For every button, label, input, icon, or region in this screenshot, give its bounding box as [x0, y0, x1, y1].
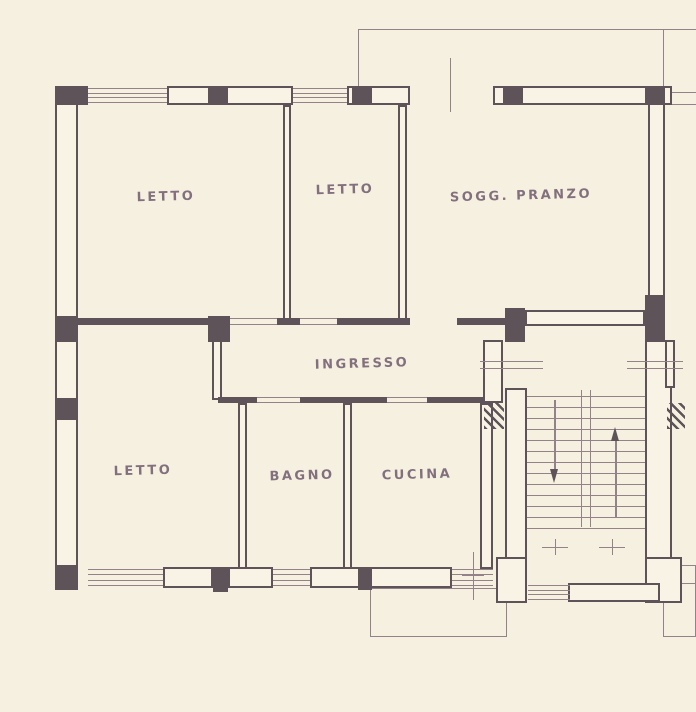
window-letto1-line [88, 97, 167, 98]
wall-north-a [167, 86, 293, 105]
entry-steps-line [528, 590, 570, 591]
door-landing-left-line [480, 361, 543, 362]
pier-south-1 [213, 567, 228, 592]
wall-letto2-soggiorno [398, 105, 407, 320]
arrowhead-up-icon [611, 427, 619, 441]
window-bagno-line [273, 580, 310, 581]
wall-soggiorno-south [525, 310, 645, 326]
wall-south-b [228, 567, 273, 588]
door-letto1-line [230, 318, 277, 319]
wall-mid-b [277, 318, 300, 325]
wall-south-c [310, 567, 452, 588]
wall-hatch-left [484, 403, 504, 429]
entry-steps-line [528, 599, 570, 600]
column-west-low [55, 398, 78, 420]
window-letto2 [293, 88, 347, 103]
wall-ingresso-west [212, 340, 222, 400]
window-bagno-line [273, 574, 310, 575]
wall-entry [483, 340, 503, 403]
door-cucina [387, 397, 427, 403]
door-bagno-line [257, 402, 300, 403]
pier-north-3 [503, 88, 523, 103]
column-sw-corner [55, 565, 78, 590]
wall-mid-c [337, 318, 410, 325]
column-landing-right [645, 295, 665, 342]
balcony-top-right-edge [663, 29, 664, 87]
window-letto3-line [88, 574, 163, 575]
pier-north-1 [208, 88, 228, 103]
wall-mid-d [457, 318, 505, 325]
door-cucina-line [387, 402, 427, 403]
column-mid [208, 316, 230, 342]
stair-stringer-line [581, 390, 582, 527]
door-letto2-line [300, 318, 337, 319]
window-letto1-line [88, 93, 167, 94]
entry-steps-line [528, 585, 570, 586]
wall-ingresso-south-a [218, 397, 257, 403]
door-letto2 [300, 318, 337, 325]
centerline-balcony-door [450, 58, 451, 112]
stair-stringer-line [590, 390, 591, 527]
balcony-top-left-edge [358, 29, 359, 87]
balcony-top-edge [358, 29, 696, 30]
room-label-letto-3: LETTO [113, 463, 172, 480]
window-letto3-line [88, 580, 163, 581]
window-letto3-line [88, 585, 163, 586]
room-label-cucina: CUCINA [382, 467, 453, 484]
door-bagno [257, 397, 300, 403]
stair-arrow-up [611, 427, 620, 518]
room-label-ingresso: INGRESSO [315, 355, 410, 372]
door-bagno-line [257, 397, 300, 398]
window-letto3-line [88, 569, 163, 570]
stair-treads-line [527, 528, 645, 529]
wall-ingresso-south-b [300, 397, 387, 403]
pier-north-2 [352, 88, 372, 103]
room-label-soggiorno-pranzo: SOGG. PRANZO [450, 187, 593, 206]
door-landing-left [480, 361, 543, 369]
centerline-mark-1 [542, 539, 568, 555]
window-letto1-line [88, 102, 167, 103]
entry-steps-line [528, 594, 570, 595]
wall-south-a [163, 567, 213, 588]
door-landing-right-line [627, 368, 683, 369]
floor-plan-canvas: LETTOLETTOSOGG. PRANZOINGRESSOLETTOBAGNO… [0, 0, 696, 712]
window-letto2-line [293, 102, 347, 103]
balcony-bottom [370, 588, 507, 637]
arrow-shaft [554, 400, 556, 471]
wall-hatch-right [667, 403, 685, 429]
door-landing-right-line [627, 361, 683, 362]
door-letto1 [230, 318, 277, 325]
centerline-cucina [473, 552, 474, 600]
arrow-shaft [615, 439, 617, 518]
column-west-mid [55, 316, 78, 342]
stair-arrow-down [550, 400, 559, 483]
cross-v [555, 539, 556, 555]
wall-ingresso-south-c [427, 397, 483, 403]
room-label-letto-2: LETTO [315, 182, 374, 199]
column-nw-corner [55, 86, 88, 105]
window-letto2-line [293, 93, 347, 94]
pier-south-2 [358, 567, 372, 590]
centerline-cucina-dash [462, 575, 484, 576]
wall-letto1-letto2 [283, 105, 291, 320]
arrowhead-down-icon [550, 469, 558, 483]
entry-steps [528, 585, 570, 600]
window-letto2-line [293, 88, 347, 89]
window-bagno [273, 569, 310, 586]
wall-mid-a [78, 318, 208, 325]
centerline-mark-2 [599, 539, 625, 555]
column-landing-left [505, 308, 525, 342]
wall-stair-bottom [568, 583, 660, 602]
wall-bagno-cucina [343, 403, 352, 569]
pier-north-4 [645, 88, 665, 103]
stair-stringer [581, 390, 591, 527]
window-letto1-line [88, 88, 167, 89]
cross-v [612, 539, 613, 555]
wall-stair-left-base [496, 557, 527, 603]
door-letto2-line [300, 324, 337, 325]
window-bagno-line [273, 569, 310, 570]
wall-letto3-bagno [238, 403, 247, 569]
window-bagno-line [273, 585, 310, 586]
room-label-letto-1: LETTO [136, 189, 195, 206]
room-label-bagno: BAGNO [269, 468, 334, 485]
window-letto1 [88, 88, 167, 103]
wall-east-exterior [648, 103, 665, 318]
window-letto2-line [293, 97, 347, 98]
door-landing-right [627, 361, 683, 369]
door-cucina-line [387, 397, 427, 398]
window-letto3 [88, 569, 163, 586]
door-letto1-line [230, 324, 277, 325]
door-landing-left-line [480, 368, 543, 369]
